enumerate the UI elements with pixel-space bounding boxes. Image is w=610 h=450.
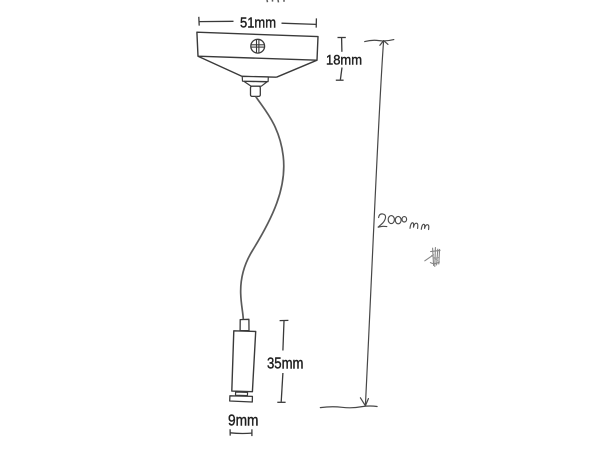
svg-text:35mm: 35mm [267, 356, 304, 373]
svg-text:51mm: 51mm [240, 15, 276, 32]
svg-text:18mm: 18mm [326, 52, 362, 67]
svg-text:9mm: 9mm [228, 413, 259, 430]
